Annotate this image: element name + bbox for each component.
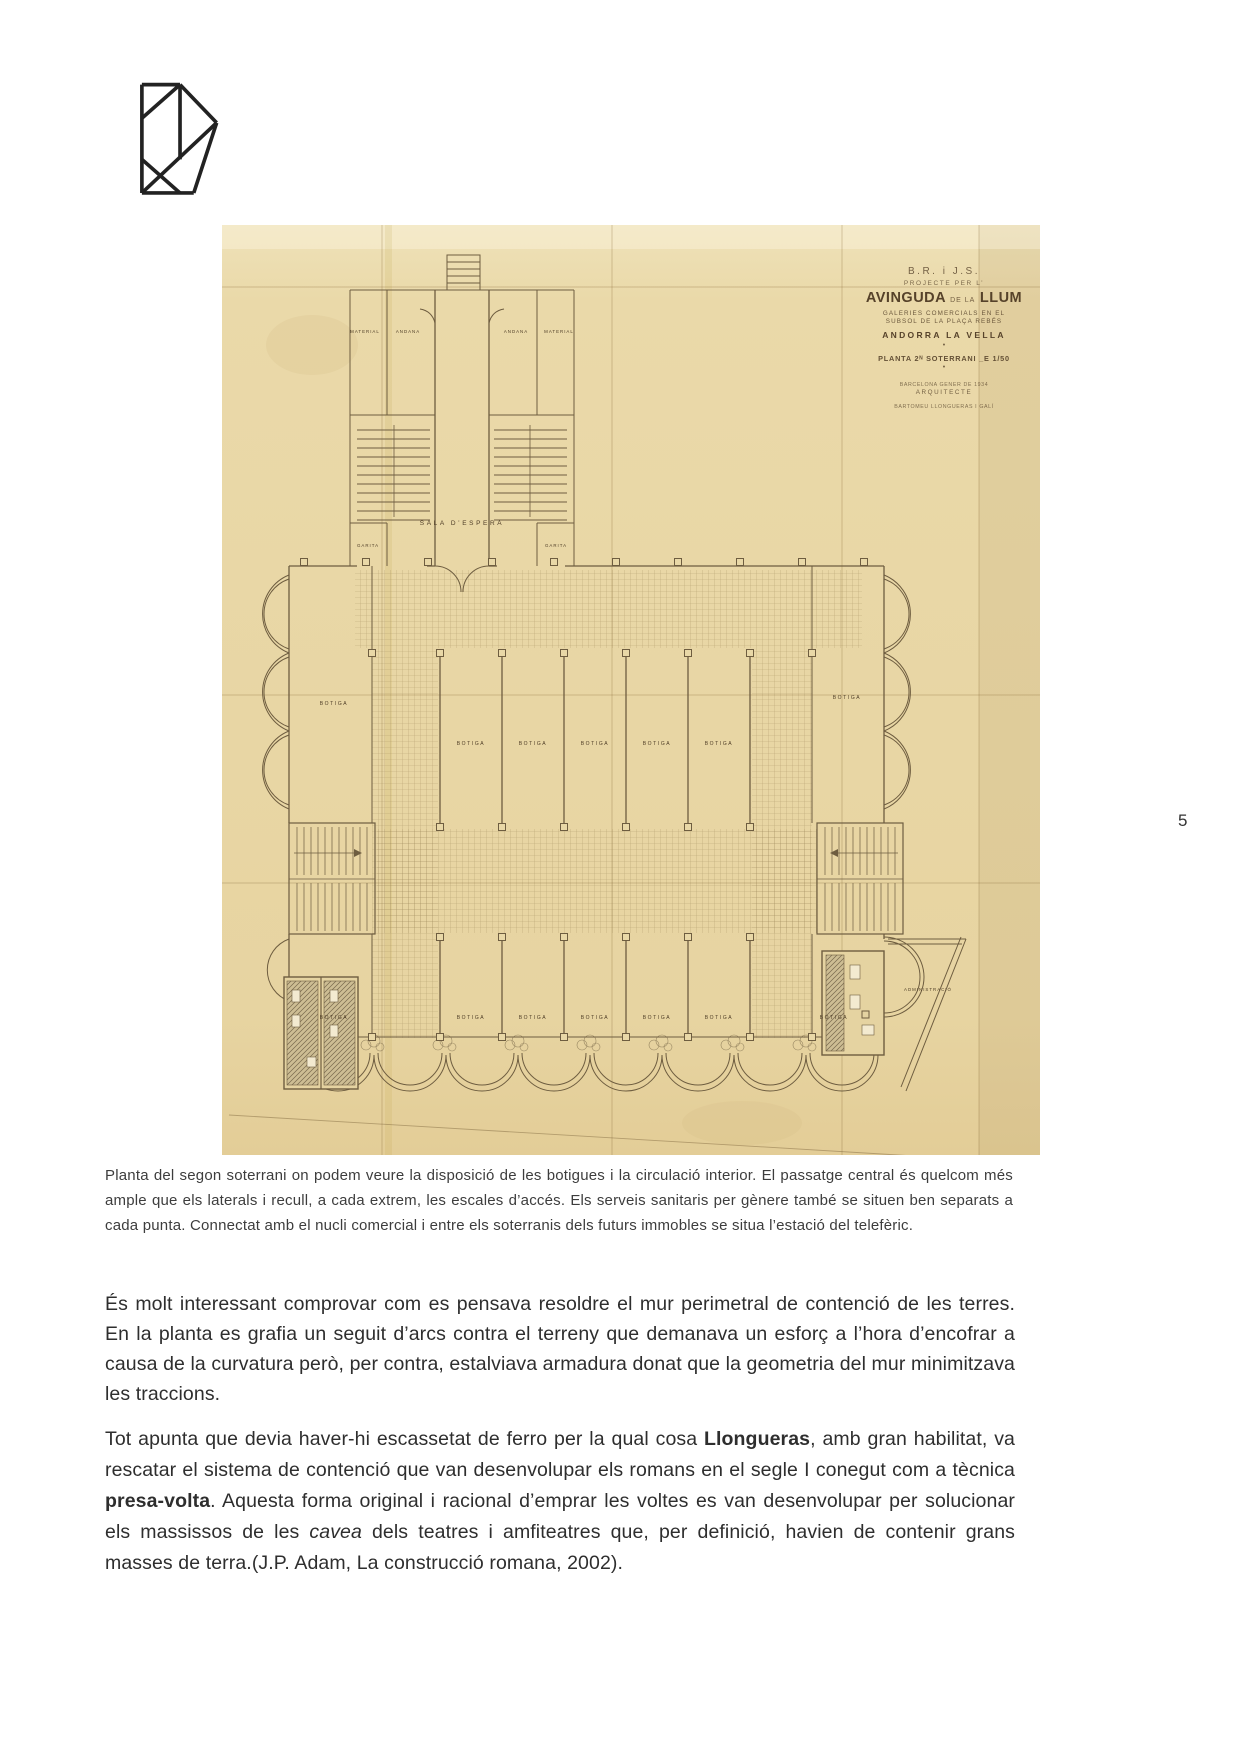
plan-room-label: BOTIGA — [581, 1015, 610, 1021]
studio-logo — [137, 77, 220, 196]
plan-room-label: ADMINISTRACIÓ — [904, 987, 952, 992]
plan-room-label: BOTIGA — [705, 741, 734, 747]
plan-room-label: BOTIGA — [643, 741, 672, 747]
plan-room-label: MATERIAL — [544, 329, 574, 334]
plan-room-label: SALA D’ESPERA — [420, 520, 504, 527]
plan-title-block: B.R. i J.S. PROJECTE PER L’ AVINGUDA DE … — [834, 265, 1040, 411]
title-project-name: AVINGUDA DE LA LLUM — [834, 289, 1040, 308]
title-separator-dot: • — [834, 341, 1040, 350]
plan-room-label: BOTIGA — [320, 1015, 349, 1021]
plan-room-label: BOTIGA — [519, 1015, 548, 1021]
plan-room-label: BOTIGA — [833, 695, 862, 701]
plan-room-label: GARITA — [357, 543, 379, 548]
plan-room-label: BOTIGA — [643, 1015, 672, 1021]
plan-room-label: GARITA — [545, 543, 567, 548]
document-page: { "page": { "number": "5" }, "figure": {… — [0, 0, 1241, 1755]
plan-room-label: BOTIGA — [320, 701, 349, 707]
plan-room-label: ANDANA — [396, 329, 420, 334]
title-project-line: PROJECTE PER L’ — [834, 280, 1040, 288]
italic-cavea: cavea — [309, 1521, 362, 1543]
figure-scan: MATERIAL MATERIAL ANDANA ANDANA GARITA G… — [222, 225, 1040, 1155]
title-llum: LLUM — [980, 290, 1022, 306]
plan-room-label: BOTIGA — [705, 1015, 734, 1021]
logo-lines — [142, 85, 217, 193]
plan-room-label: BOTIGA — [519, 741, 548, 747]
title-initials: B.R. i J.S. — [834, 265, 1040, 278]
plan-room-label: ANDANA — [504, 329, 528, 334]
toilet-block — [284, 977, 358, 1089]
title-de-la: DE LA — [950, 297, 975, 304]
title-separator-dot: • — [834, 363, 1040, 372]
plan-room-label: BOTIGA — [457, 741, 486, 747]
page-number: 5 — [1178, 811, 1187, 831]
paragraph-text: Tot apunta que devia haver-hi escassetat… — [105, 1428, 704, 1450]
plan-room-label: BOTIGA — [581, 741, 610, 747]
body-paragraph-1: És molt interessant comprovar com es pen… — [105, 1289, 1015, 1409]
bold-presa-volta: presa-volta — [105, 1490, 210, 1512]
title-subsol: SUBSOL DE LA PLAÇA REBÉS — [834, 318, 1040, 326]
figure-caption: Planta del segon soterrani on podem veur… — [105, 1163, 1013, 1238]
plan-room-label: BOTIGA — [820, 1015, 849, 1021]
title-planta-scale: PLANTA 2ᴺ SOTERRANI _E 1/50 — [834, 354, 1040, 363]
bold-llongueras: Llongueras — [704, 1428, 810, 1450]
title-architect-name: BARTOMEU LLONGUERAS I GALÍ — [834, 404, 1040, 411]
title-avinguda: AVINGUDA — [866, 290, 946, 306]
body-paragraph-2: Tot apunta que devia haver-hi escassetat… — [105, 1424, 1015, 1579]
plan-room-label: MATERIAL — [350, 329, 380, 334]
title-architect-word: ARQUITECTE — [834, 389, 1040, 397]
title-city: ANDORRA LA VELLA — [834, 330, 1040, 341]
title-place-date: BARCELONA GENER DE 1934 — [834, 382, 1040, 389]
plan-room-label: BOTIGA — [457, 1015, 486, 1021]
